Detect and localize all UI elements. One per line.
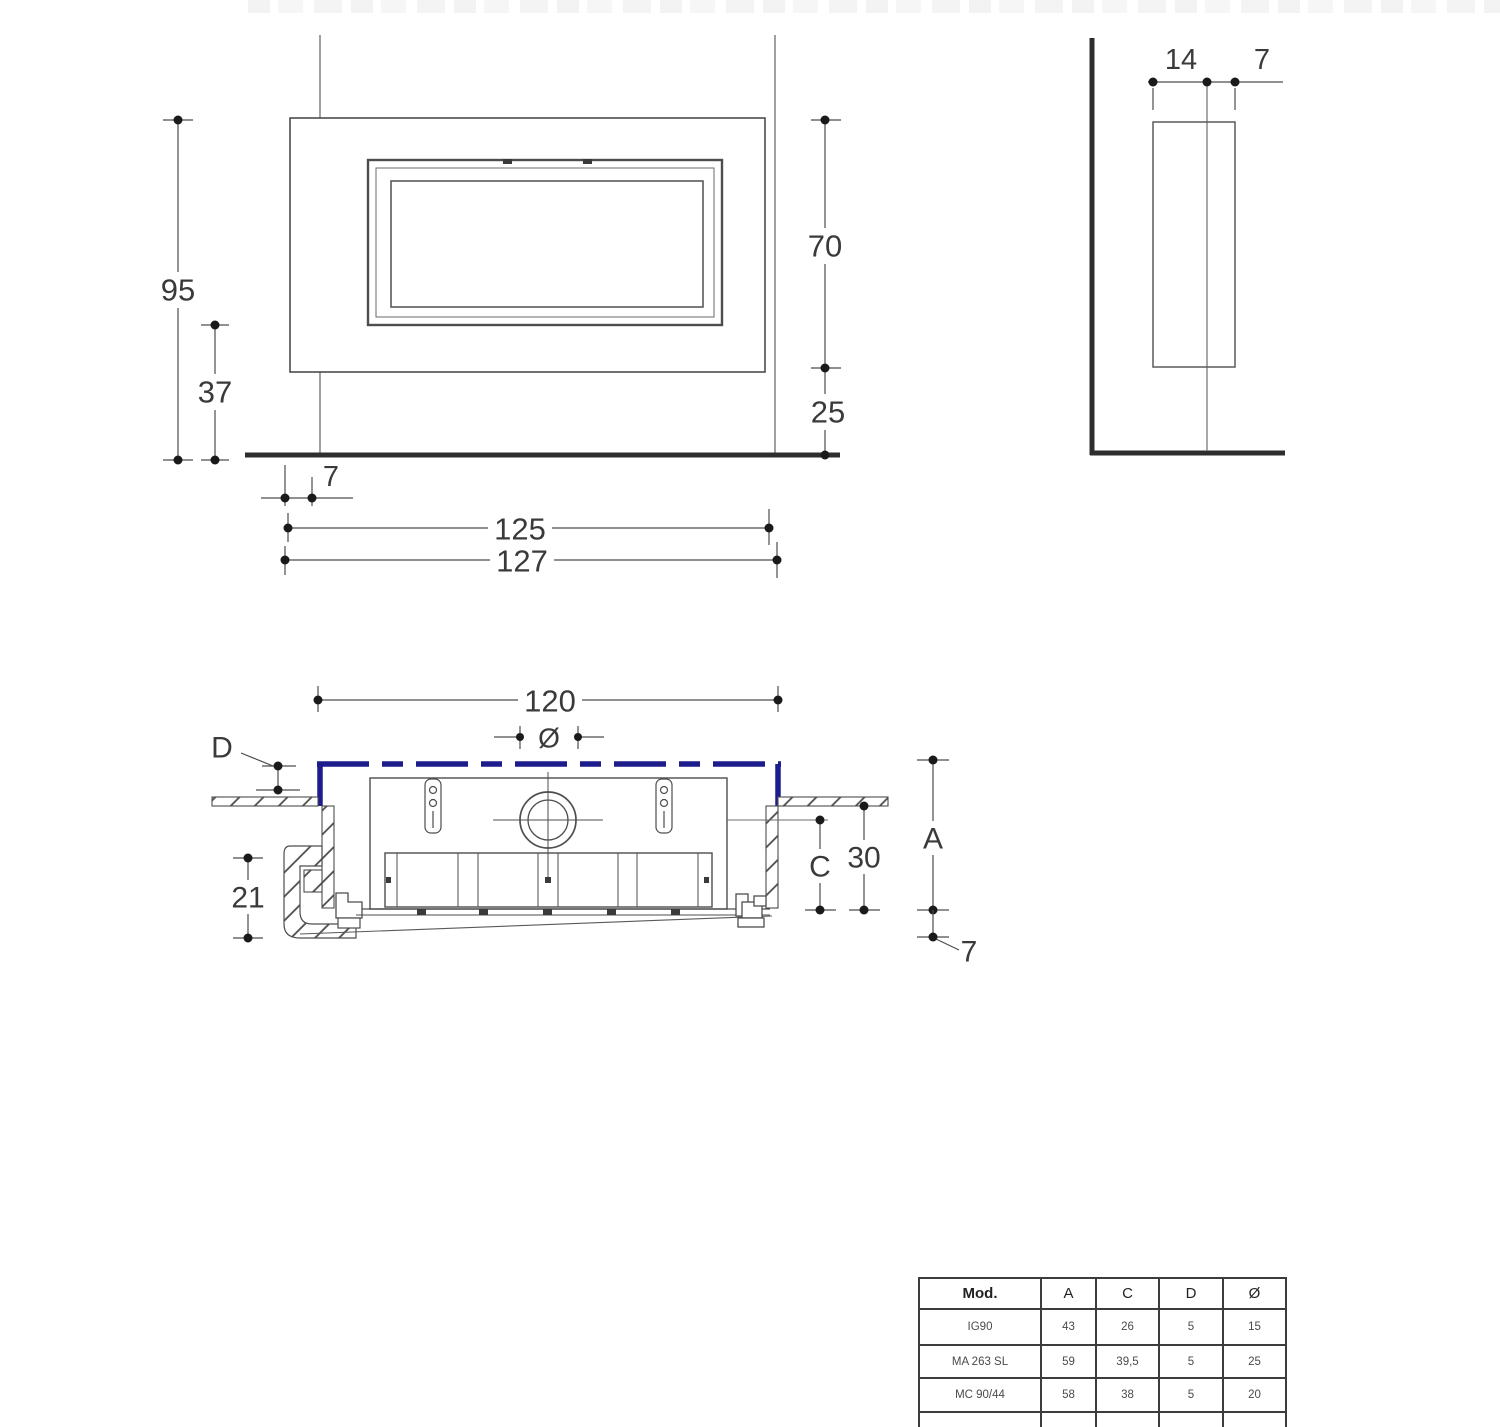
side-view: 14 7 (1090, 38, 1285, 455)
dim-127: 127 (281, 542, 782, 579)
left-clamp-bracket (336, 893, 362, 918)
spec-cell-model: MC 90/44 (919, 1378, 1041, 1412)
dim-label-d: D (211, 732, 233, 765)
spec-header-c: C (1096, 1278, 1159, 1309)
dim-125: 125 (284, 509, 774, 547)
front-view: 95 37 70 (155, 35, 852, 579)
spec-header-diameter: Ø (1223, 1278, 1286, 1309)
plan-view: 120 Ø (211, 683, 977, 969)
dim-37: 37 (191, 321, 239, 465)
grill-stud-center (545, 877, 551, 883)
dim-diameter: Ø (494, 723, 604, 754)
grill-stud-left (386, 877, 391, 883)
dim-label-125: 125 (494, 512, 546, 547)
dim-label-7-front: 7 (323, 461, 339, 493)
right-clamp-bracket (736, 894, 766, 927)
dim-label-a: A (923, 823, 943, 856)
dim-label-70: 70 (808, 229, 842, 264)
spec-row-cutoff (919, 1412, 1286, 1427)
base-band (356, 909, 770, 915)
dim-label-14: 14 (1165, 44, 1197, 76)
spec-cell-diameter: 25 (1223, 1345, 1286, 1378)
dim-120: 120 (314, 683, 783, 719)
dim-label-21: 21 (231, 882, 264, 915)
dim-7-front: 7 (261, 461, 353, 506)
spec-cell-diameter: 15 (1223, 1309, 1286, 1345)
dim-c: C (801, 816, 839, 915)
wall-band-left (212, 797, 318, 806)
base-slant-line (300, 916, 772, 934)
dim-30: 30 (840, 802, 890, 915)
dim-label-7-plan: 7 (961, 936, 978, 969)
recess-wall-left (322, 806, 334, 908)
spec-cell-d: 5 (1159, 1378, 1223, 1412)
dim-70-25: 70 25 (802, 116, 852, 460)
spec-table-container: Mod. A C D Ø IG90 43 26 5 15 MA 263 SL 5… (918, 1277, 1287, 1427)
spec-header-a: A (1041, 1278, 1096, 1309)
dim-95: 95 (155, 116, 201, 465)
spec-cell-c: 26 (1096, 1309, 1159, 1345)
dim-a: A (914, 756, 952, 915)
dim-21: 21 (224, 854, 272, 943)
dim-label-120: 120 (524, 684, 576, 719)
spec-cell-model: MA 263 SL (919, 1345, 1041, 1378)
grill-stud-right (704, 877, 709, 883)
spec-cell-model: IG90 (919, 1309, 1041, 1345)
spec-cell-c: 38 (1096, 1378, 1159, 1412)
dim-label-127: 127 (496, 544, 548, 579)
spec-header-d: D (1159, 1278, 1223, 1309)
side-unit-body (1153, 122, 1235, 367)
dim-d: D (211, 732, 300, 795)
recess-wall-right (766, 806, 778, 908)
spec-cell-a: 43 (1041, 1309, 1096, 1345)
dim-label-37: 37 (198, 375, 232, 410)
dim-label-diameter: Ø (538, 723, 560, 754)
frame-tick-1 (503, 159, 512, 164)
dim-label-c: C (809, 851, 831, 884)
spec-table: Mod. A C D Ø IG90 43 26 5 15 MA 263 SL 5… (918, 1277, 1287, 1427)
spec-table-header-row: Mod. A C D Ø (919, 1278, 1286, 1309)
dim-label-25: 25 (811, 395, 845, 430)
cut-off-text-strip (248, 0, 1500, 13)
fireplace-dimension-drawing: 95 37 70 (0, 0, 1500, 1427)
corbel-inner-block (304, 870, 322, 892)
spec-row-ma263sl: MA 263 SL 59 39,5 5 25 (919, 1345, 1286, 1378)
left-clamp-foot (338, 918, 360, 928)
firebox-glass (391, 181, 703, 307)
dim-label-30: 30 (847, 842, 880, 875)
spec-cell-c: 39,5 (1096, 1345, 1159, 1378)
spec-row-mc9044: MC 90/44 58 38 5 20 (919, 1378, 1286, 1412)
spec-cell-d: 5 (1159, 1309, 1223, 1345)
spec-cell-a: 58 (1041, 1378, 1096, 1412)
wall-band-right (778, 797, 888, 806)
dim-label-7-side: 7 (1254, 44, 1270, 76)
spec-cell-d: 5 (1159, 1345, 1223, 1378)
dim-7-plan: 7 (917, 910, 977, 969)
technical-drawing-page: 95 37 70 (0, 0, 1500, 1427)
spec-row-ig90: IG90 43 26 5 15 (919, 1309, 1286, 1345)
frame-tick-2 (583, 159, 592, 164)
dim-label-95: 95 (161, 273, 195, 308)
dim-14-7: 14 7 (1148, 44, 1283, 110)
spec-cell-diameter: 20 (1223, 1378, 1286, 1412)
spec-header-mod: Mod. (919, 1278, 1041, 1309)
spec-cell-a: 59 (1041, 1345, 1096, 1378)
